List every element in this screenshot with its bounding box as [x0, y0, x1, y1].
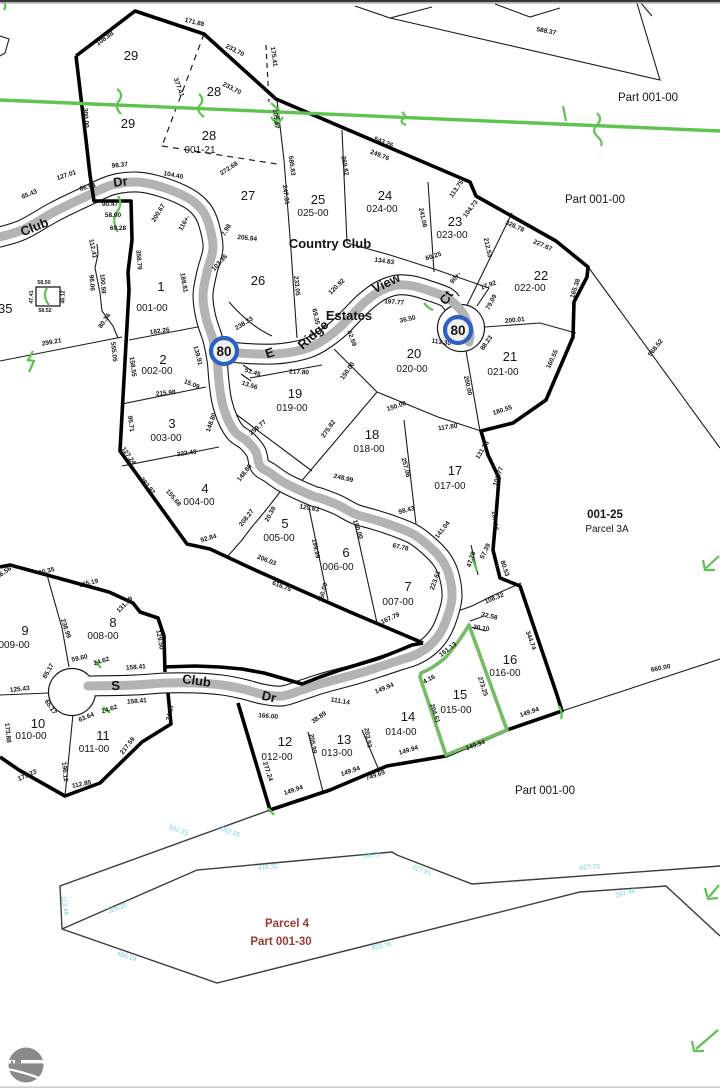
svg-text:35: 35 — [0, 301, 12, 316]
svg-text:004-00: 004-00 — [183, 497, 215, 508]
svg-text:001-00: 001-00 — [136, 303, 168, 314]
svg-text:217.80: 217.80 — [289, 368, 310, 376]
svg-text:1: 1 — [157, 279, 164, 294]
svg-text:018-00: 018-00 — [353, 444, 385, 455]
svg-text:Estates: Estates — [326, 308, 372, 323]
svg-text:001-25: 001-25 — [587, 509, 623, 521]
svg-text:002-00: 002-00 — [141, 366, 173, 377]
svg-text:23: 23 — [448, 214, 462, 229]
svg-text:011-00: 011-00 — [79, 744, 110, 755]
svg-text:16: 16 — [503, 652, 517, 667]
svg-text:197.77: 197.77 — [384, 298, 405, 306]
svg-text:58.00: 58.00 — [105, 212, 122, 219]
svg-text:10: 10 — [31, 716, 45, 731]
svg-text:S: S — [111, 678, 121, 694]
svg-text:27: 27 — [241, 188, 255, 203]
svg-text:023-00: 023-00 — [436, 230, 468, 241]
svg-text:Part 001-00: Part 001-00 — [618, 92, 678, 104]
svg-text:90.47: 90.47 — [102, 201, 119, 208]
svg-text:012-00: 012-00 — [261, 752, 293, 763]
svg-text:001-21: 001-21 — [184, 145, 216, 156]
svg-text:26: 26 — [251, 273, 265, 288]
svg-text:22: 22 — [534, 268, 548, 283]
svg-text:166.00: 166.00 — [258, 712, 279, 720]
svg-text:016-00: 016-00 — [489, 668, 521, 679]
svg-text:627.73: 627.73 — [580, 863, 601, 871]
svg-text:15: 15 — [453, 687, 467, 702]
svg-text:Parcel 3A: Parcel 3A — [585, 524, 629, 535]
svg-text:003-00: 003-00 — [150, 433, 182, 444]
svg-text:47.41: 47.41 — [29, 290, 35, 303]
svg-text:005-00: 005-00 — [263, 533, 295, 544]
svg-text:9: 9 — [21, 623, 28, 638]
svg-text:96.06: 96.06 — [87, 274, 95, 291]
svg-text:58.50: 58.50 — [37, 280, 50, 286]
svg-text:80: 80 — [216, 344, 231, 359]
svg-text:6: 6 — [342, 545, 349, 560]
svg-text:18: 18 — [365, 427, 379, 442]
svg-text:015-00: 015-00 — [440, 705, 472, 716]
svg-text:5: 5 — [281, 516, 288, 531]
svg-text:3: 3 — [168, 416, 175, 431]
svg-text:024-00: 024-00 — [366, 204, 398, 215]
svg-text:21: 21 — [503, 349, 517, 364]
svg-text:007-00: 007-00 — [382, 597, 414, 608]
svg-text:Part 001-30: Part 001-30 — [250, 936, 311, 948]
svg-text:Dr: Dr — [112, 173, 128, 190]
svg-text:29: 29 — [121, 116, 135, 131]
svg-text:158.41: 158.41 — [127, 697, 148, 705]
svg-text:Part 001-00: Part 001-00 — [565, 194, 625, 206]
svg-text:80: 80 — [450, 323, 465, 338]
svg-text:158.41: 158.41 — [126, 663, 147, 671]
svg-text:2: 2 — [159, 352, 166, 367]
svg-text:12: 12 — [278, 734, 292, 749]
svg-text:11: 11 — [96, 728, 110, 743]
svg-text:28: 28 — [207, 84, 221, 99]
svg-text:25: 25 — [311, 192, 325, 207]
svg-text:017-00: 017-00 — [434, 481, 466, 492]
svg-text:Part 001-00: Part 001-00 — [515, 785, 575, 797]
svg-text:021-00: 021-00 — [487, 367, 519, 378]
svg-text:019-00: 019-00 — [276, 403, 308, 414]
svg-text:008-00: 008-00 — [87, 631, 119, 642]
svg-text:20: 20 — [407, 346, 421, 361]
svg-text:7: 7 — [404, 579, 411, 594]
svg-text:24: 24 — [378, 188, 392, 203]
svg-text:29: 29 — [124, 48, 138, 63]
svg-text:014-00: 014-00 — [385, 727, 417, 738]
svg-text:Country Club: Country Club — [289, 236, 371, 251]
svg-text:17: 17 — [448, 463, 462, 478]
svg-text:69.28: 69.28 — [110, 225, 127, 232]
svg-text:300.00: 300.00 — [81, 108, 89, 129]
svg-text:8: 8 — [109, 615, 116, 630]
svg-text:46.12: 46.12 — [61, 290, 67, 303]
svg-text:4: 4 — [201, 481, 208, 496]
svg-text:14: 14 — [401, 709, 415, 724]
svg-text:025-00: 025-00 — [297, 208, 329, 219]
svg-text:19: 19 — [288, 386, 302, 401]
svg-text:022-00: 022-00 — [514, 283, 546, 294]
svg-text:Parcel 4: Parcel 4 — [265, 918, 310, 930]
svg-text:020-00: 020-00 — [396, 364, 428, 375]
svg-text:13: 13 — [337, 732, 351, 747]
svg-text:009-00: 009-00 — [0, 640, 30, 651]
svg-text:58.52: 58.52 — [38, 308, 51, 314]
svg-text:006-00: 006-00 — [322, 562, 354, 573]
svg-text:28: 28 — [202, 128, 216, 143]
svg-text:013-00: 013-00 — [321, 748, 353, 759]
svg-text:010-00: 010-00 — [15, 731, 47, 742]
